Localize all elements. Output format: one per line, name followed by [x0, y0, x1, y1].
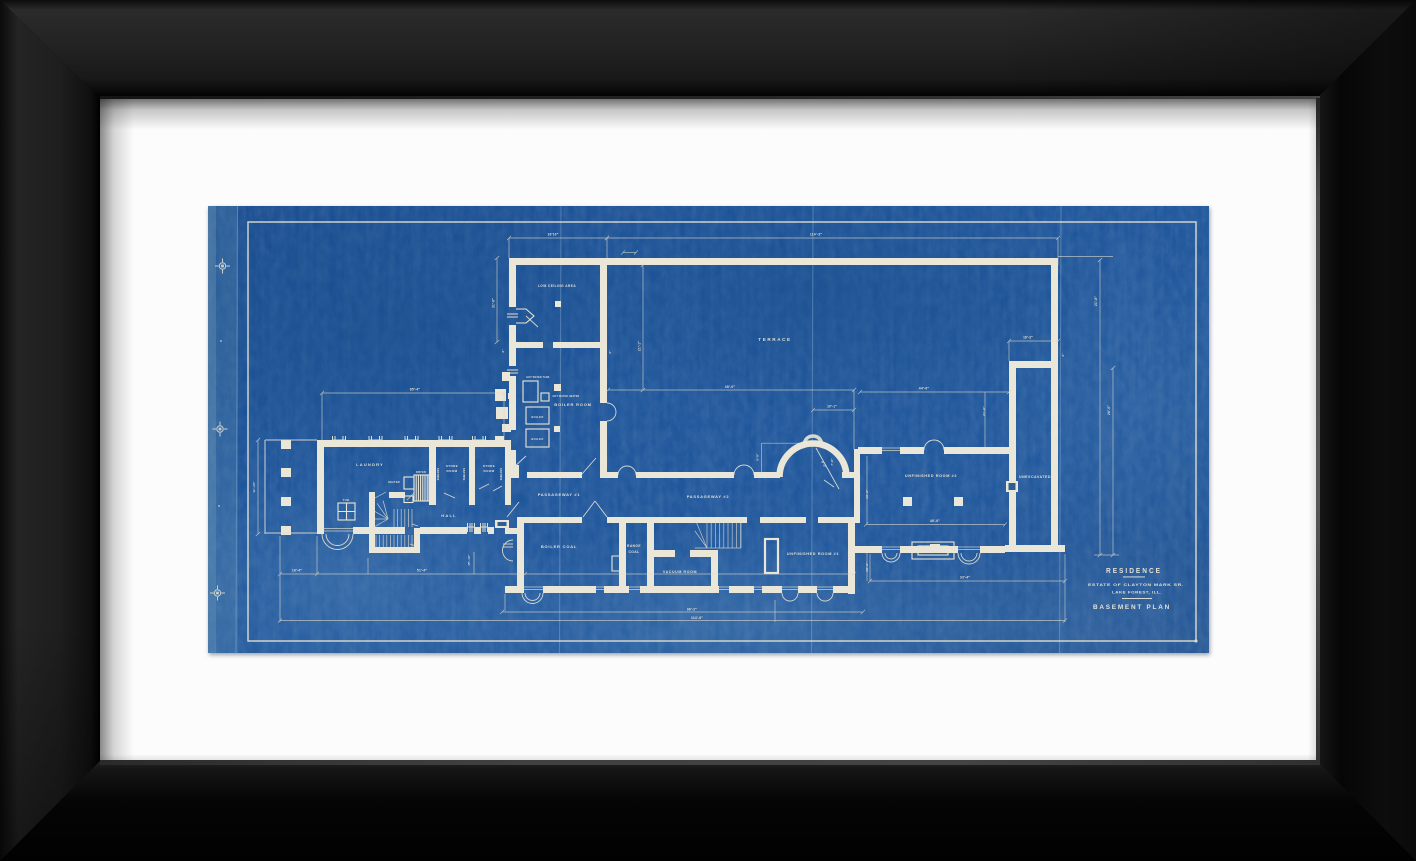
- svg-text:BOILER: BOILER: [531, 415, 543, 419]
- svg-text:VACUUM ROOM: VACUUM ROOM: [663, 570, 697, 574]
- svg-text:4″: 4″: [608, 350, 612, 354]
- svg-text:44′-6″: 44′-6″: [919, 387, 930, 391]
- svg-text:85′-4″: 85′-4″: [410, 388, 421, 392]
- svg-text:DRYER: DRYER: [416, 470, 426, 474]
- svg-text:21′-1″: 21′-1″: [638, 341, 642, 351]
- svg-text:21′-6″: 21′-6″: [982, 406, 986, 416]
- svg-text:15′-10″: 15′-10″: [467, 554, 471, 566]
- svg-text:SHELVES: SHELVES: [473, 468, 476, 481]
- svg-text:HOT WATER HEATER: HOT WATER HEATER: [553, 395, 580, 398]
- svg-text:114′-6″: 114′-6″: [691, 616, 703, 620]
- svg-text:46′-6″: 46′-6″: [930, 519, 940, 523]
- svg-text:STORE: STORE: [446, 464, 458, 468]
- svg-text:31′-8″: 31′-8″: [492, 298, 496, 308]
- svg-text:SHELVES: SHELVES: [500, 468, 503, 481]
- svg-text:ROOM: ROOM: [447, 469, 458, 473]
- svg-text:ESTATE OF CLAYTON MARK SR.: ESTATE OF CLAYTON MARK SR.: [1088, 583, 1184, 587]
- svg-text:114′-3″: 114′-3″: [810, 233, 822, 237]
- svg-text:BASEMENT PLAN: BASEMENT PLAN: [1093, 604, 1171, 611]
- svg-text:RANGE: RANGE: [627, 544, 641, 548]
- svg-text:18′-6″: 18′-6″: [865, 562, 869, 572]
- svg-text:BOILER: BOILER: [531, 437, 543, 441]
- svg-text:LAKE FOREST, ILL.: LAKE FOREST, ILL.: [1112, 591, 1162, 595]
- svg-text:21′-8″: 21′-8″: [1094, 296, 1098, 306]
- svg-text:LOW CEILING AREA: LOW CEILING AREA: [538, 284, 576, 288]
- svg-text:13′-6″: 13′-6″: [865, 489, 869, 499]
- svg-text:UNEXCAVATED: UNEXCAVATED: [1019, 475, 1051, 479]
- svg-text:BOILER COAL: BOILER COAL: [541, 544, 577, 549]
- svg-text:TERRACE: TERRACE: [758, 337, 791, 342]
- svg-text:33′-4″: 33′-4″: [960, 576, 970, 580]
- svg-text:16′10″: 16′10″: [547, 233, 558, 237]
- svg-text:16′-4″: 16′-4″: [292, 569, 302, 573]
- svg-text:96′-2″: 96′-2″: [687, 608, 697, 612]
- svg-text:PASSAGEWAY #1: PASSAGEWAY #1: [538, 492, 581, 497]
- svg-text:ROOM: ROOM: [484, 469, 495, 473]
- svg-text:TUB: TUB: [343, 498, 349, 502]
- svg-text:LAUNDRY: LAUNDRY: [356, 462, 384, 467]
- svg-text:48′-0″: 48′-0″: [725, 385, 736, 389]
- svg-text:5′-0″: 5′-0″: [756, 453, 760, 461]
- svg-text:28′-0″: 28′-0″: [1107, 405, 1111, 415]
- svg-text:PASSAGEWAY #2: PASSAGEWAY #2: [687, 494, 730, 499]
- svg-text:RESIDENCE: RESIDENCE: [1106, 566, 1162, 575]
- svg-text:STORE: STORE: [483, 464, 495, 468]
- svg-text:11′-10″: 11′-10″: [252, 481, 256, 493]
- svg-text:COAL: COAL: [629, 550, 640, 554]
- svg-text:HOT WATER TANK: HOT WATER TANK: [526, 376, 549, 379]
- svg-text:51′-4″: 51′-4″: [417, 569, 427, 573]
- svg-text:18′-2″: 18′-2″: [1023, 336, 1033, 340]
- svg-text:UNFINISHED ROOM #2: UNFINISHED ROOM #2: [905, 474, 957, 478]
- svg-text:7′-6″: 7′-6″: [830, 458, 834, 466]
- svg-text:HALL: HALL: [441, 513, 456, 518]
- svg-text:BOILER ROOM: BOILER ROOM: [554, 402, 591, 407]
- svg-text:UNFINISHED ROOM #1: UNFINISHED ROOM #1: [787, 552, 839, 556]
- svg-text:HEATER: HEATER: [388, 480, 400, 484]
- svg-text:SHELVES: SHELVES: [437, 468, 440, 481]
- svg-text:10′-1″: 10′-1″: [827, 405, 837, 409]
- svg-text:SHELVES: SHELVES: [463, 468, 466, 481]
- svg-text:4″: 4″: [501, 349, 505, 353]
- svg-text:4″: 4″: [1061, 353, 1065, 357]
